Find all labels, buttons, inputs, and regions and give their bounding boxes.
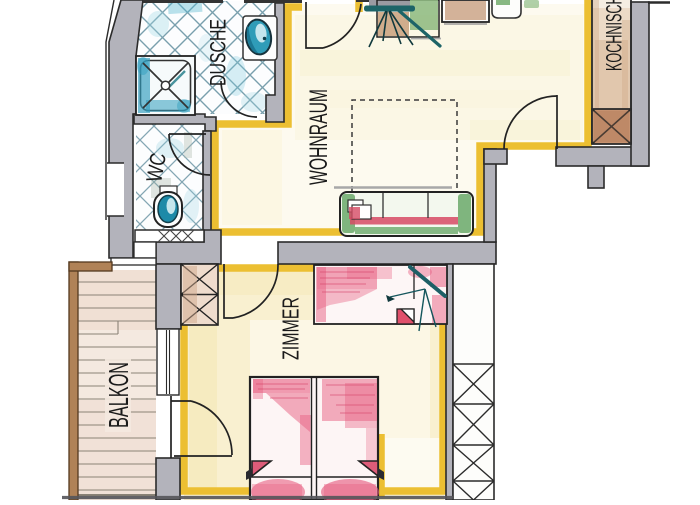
svg-text:DUSCHE: DUSCHE xyxy=(206,19,231,86)
svg-text:ZIMMER: ZIMMER xyxy=(278,297,304,360)
svg-text:KOCHNISCHE: KOCHNISCHE xyxy=(602,0,627,71)
svg-text:BALKON: BALKON xyxy=(103,362,134,428)
svg-text:WC: WC xyxy=(141,151,171,184)
svg-text:WOHNRAUM: WOHNRAUM xyxy=(305,89,333,185)
